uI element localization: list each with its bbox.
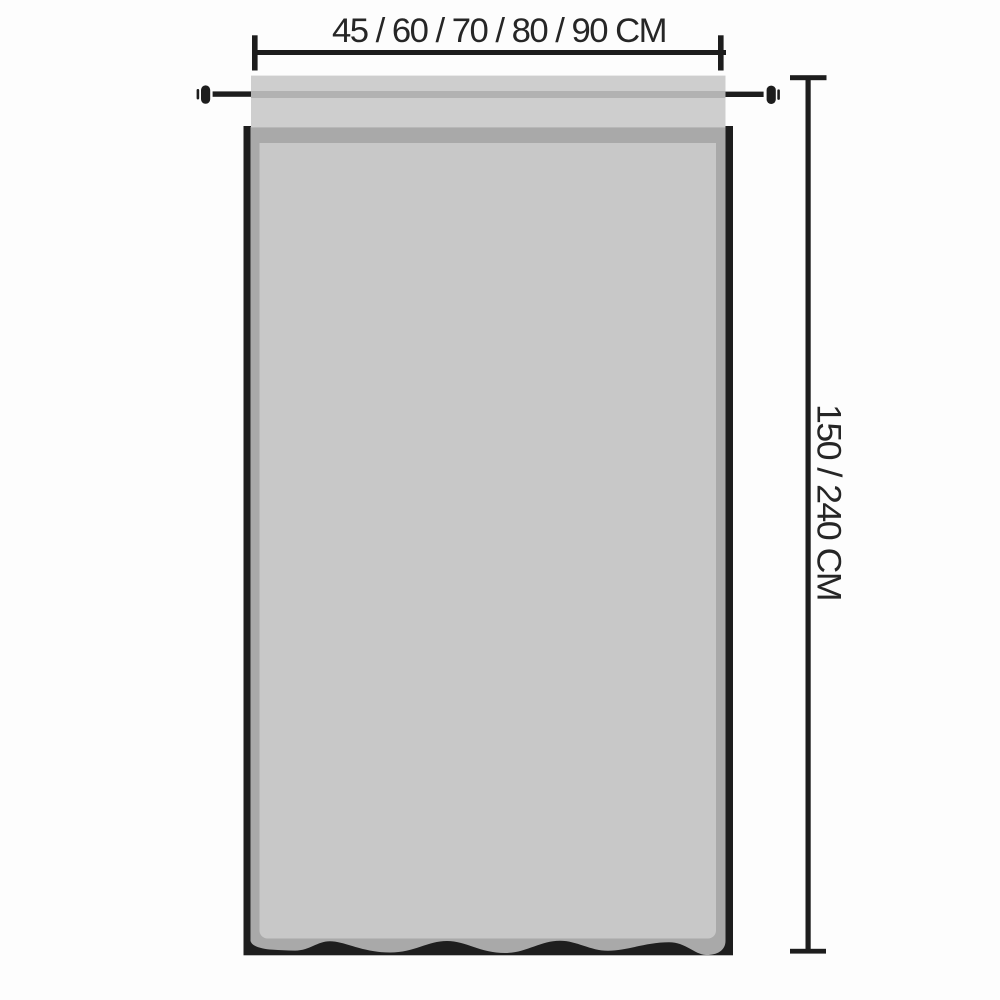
svg-text:45 / 60 / 70 / 80 / 90 CM: 45 / 60 / 70 / 80 / 90 CM xyxy=(332,12,666,50)
svg-text:150 / 240 CM: 150 / 240 CM xyxy=(810,404,848,600)
